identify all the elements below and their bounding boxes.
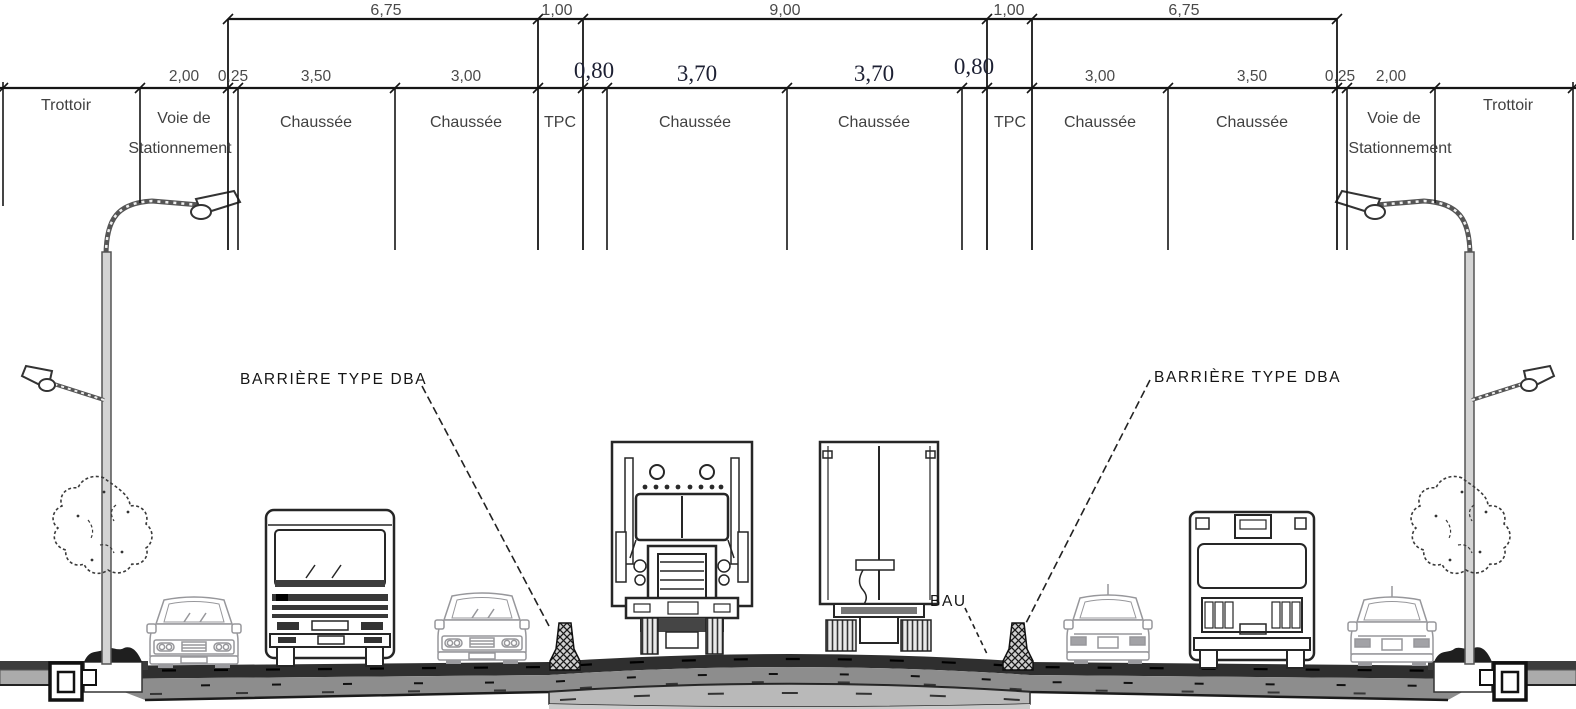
zone-label-chaussee-6: Chaussée <box>1216 114 1288 131</box>
zone-label-trottoir-right: Trottoir <box>1483 97 1534 114</box>
zone-label-tpc-right: TPC <box>994 114 1026 131</box>
road-cross-section-drawing: 6,75 1,00 9,00 1,00 6,75 2,00 0,25 3,50 … <box>0 0 1576 709</box>
car-front-center <box>435 593 529 664</box>
dim-label: 0,25 <box>1325 68 1355 85</box>
zone-label-tpc-left: TPC <box>544 114 576 131</box>
leader-lines <box>422 380 1150 656</box>
dim-label: 3,50 <box>1237 68 1268 85</box>
leader-barriere-right <box>1025 380 1150 625</box>
car-rear-right <box>1348 586 1436 666</box>
dba-barrier-right <box>1003 623 1033 670</box>
dim-label: 9,00 <box>769 2 800 19</box>
zone-label-chaussee-1: Chaussée <box>280 114 352 131</box>
dim-label: 0,25 <box>218 68 248 85</box>
drawing-canvas: 6,75 1,00 9,00 1,00 6,75 2,00 0,25 3,50 … <box>0 0 1576 709</box>
dim-label: 2,00 <box>169 68 200 85</box>
dim-label: 3,70 <box>677 61 717 86</box>
box-truck-rear <box>820 442 938 651</box>
car-rear-center <box>1064 584 1152 664</box>
dim-label: 6,75 <box>370 2 401 19</box>
truck-front <box>612 442 752 654</box>
dim-label: 0,80 <box>574 58 614 83</box>
zone-label-trottoir-left: Trottoir <box>41 97 92 114</box>
barriere-label-left: BARRIÈRE TYPE DBA <box>240 371 427 388</box>
zone-label-stationnement-right-2: Stationnement <box>1348 140 1452 157</box>
zone-label-chaussee-3: Chaussée <box>659 114 731 131</box>
dba-barrier-left <box>550 623 580 670</box>
street-lamp-left <box>22 191 240 664</box>
sub-dimension-labels: 2,00 0,25 3,50 3,00 0,80 3,70 3,70 0,80 … <box>169 54 1407 86</box>
dim-label: 3,50 <box>301 68 332 85</box>
central-deck-slab <box>549 684 1030 707</box>
dim-label: 2,00 <box>1376 68 1407 85</box>
dimension-lines <box>0 14 1576 250</box>
dim-label: 3,00 <box>1085 68 1116 85</box>
dim-label: 6,75 <box>1168 2 1199 19</box>
street-lamp-right <box>1336 191 1554 664</box>
dim-label: 3,70 <box>854 61 894 86</box>
zone-label-stationnement-right-1: Voie de <box>1367 110 1420 127</box>
barriere-label-right: BARRIÈRE TYPE DBA <box>1154 369 1341 386</box>
bau-label: BAU <box>930 593 967 610</box>
leader-bau <box>965 608 988 656</box>
leader-barriere-left <box>422 386 549 626</box>
zone-label-chaussee-5: Chaussée <box>1064 114 1136 131</box>
dim-label: 0,80 <box>954 54 994 79</box>
zone-label-stationnement-left-2: Stationnement <box>128 140 232 157</box>
dim-label: 1,00 <box>541 2 572 19</box>
dim-label: 1,00 <box>993 2 1024 19</box>
annotation-labels: BARRIÈRE TYPE DBA BARRIÈRE TYPE DBA BAU <box>240 369 1341 610</box>
zone-label-stationnement-left-1: Voie de <box>157 110 210 127</box>
tree-right <box>1411 476 1510 573</box>
dim-label: 3,00 <box>451 68 482 85</box>
bus-front <box>266 510 394 666</box>
zone-label-chaussee-2: Chaussée <box>430 114 502 131</box>
bus-rear <box>1190 512 1314 668</box>
car-front-left <box>147 597 241 668</box>
road-structure <box>90 654 1486 709</box>
top-dimension-labels: 6,75 1,00 9,00 1,00 6,75 <box>370 2 1199 19</box>
zone-label-chaussee-4: Chaussée <box>838 114 910 131</box>
